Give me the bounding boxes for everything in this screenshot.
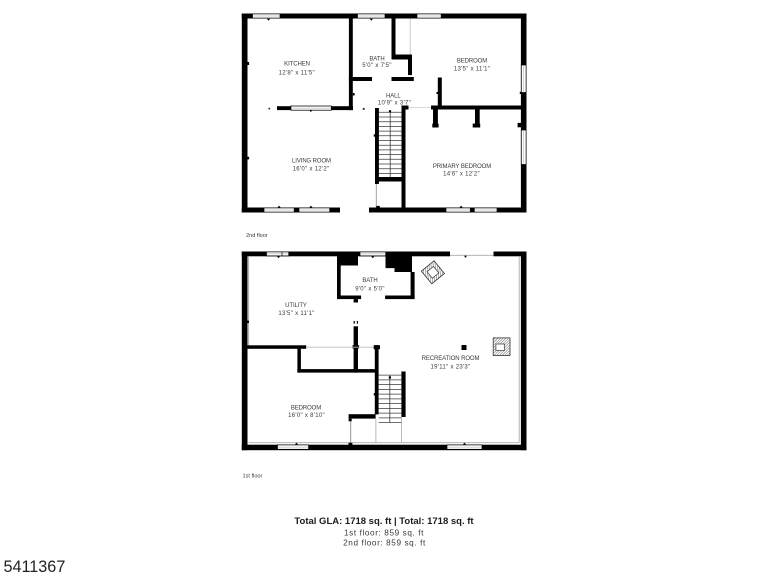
svg-text:9'0" x 5'0": 9'0" x 5'0" <box>355 287 385 293</box>
svg-text:LIVING ROOM: LIVING ROOM <box>292 158 331 164</box>
svg-text:KITCHEN: KITCHEN <box>284 62 310 68</box>
svg-text:1st floor: 1st floor <box>243 473 263 479</box>
svg-text:RECREATION ROOM: RECREATION ROOM <box>422 356 480 362</box>
svg-text:16'0" x 8'10": 16'0" x 8'10" <box>288 413 325 419</box>
svg-text:BEDROOM: BEDROOM <box>291 405 321 411</box>
svg-text:2nd floor: 2nd floor <box>246 233 268 239</box>
svg-text:16'0" x 12'2": 16'0" x 12'2" <box>293 166 330 172</box>
svg-text:BATH: BATH <box>369 56 384 62</box>
svg-text:PRIMARY BEDROOM: PRIMARY BEDROOM <box>433 164 491 170</box>
svg-text:19'11" x 23'3": 19'11" x 23'3" <box>431 365 471 371</box>
svg-text:HALL: HALL <box>386 94 401 100</box>
svg-text:2nd floor: 859 sq. ft: 2nd floor: 859 sq. ft <box>343 538 426 547</box>
svg-text:BATH: BATH <box>362 278 377 284</box>
svg-text:10'9" x 3'7": 10'9" x 3'7" <box>378 101 411 107</box>
svg-text:13'5" x 11'1": 13'5" x 11'1" <box>278 311 314 317</box>
svg-text:5411367: 5411367 <box>4 558 66 576</box>
svg-text:BEDROOM: BEDROOM <box>457 58 487 64</box>
svg-text:14'6" x 12'2": 14'6" x 12'2" <box>443 172 480 178</box>
svg-text:13'5" x 11'1": 13'5" x 11'1" <box>454 66 490 72</box>
svg-text:5'0" x 7'5": 5'0" x 7'5" <box>362 63 392 69</box>
svg-text:Total GLA: 1718 sq. ft | Total: Total GLA: 1718 sq. ft | Total: 1718 sq.… <box>294 516 474 527</box>
svg-text:1st floor: 859 sq. ft: 1st floor: 859 sq. ft <box>344 528 424 537</box>
svg-text:UTILITY: UTILITY <box>285 303 307 309</box>
svg-text:12'8" x 11'5": 12'8" x 11'5" <box>279 70 315 76</box>
